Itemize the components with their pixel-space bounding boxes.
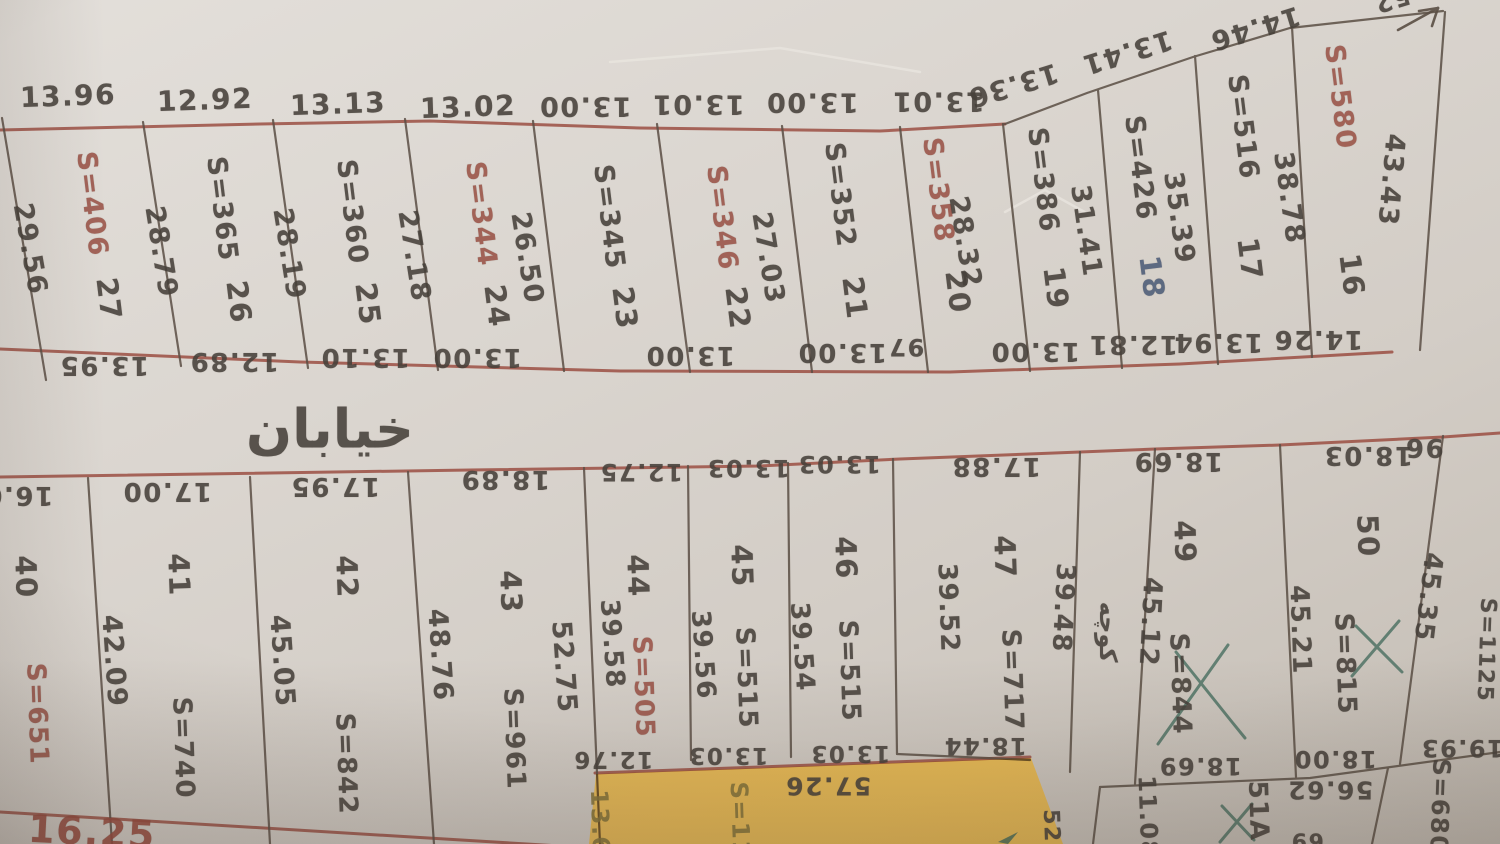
top-width-plot-27: 13.96 xyxy=(19,78,116,114)
bottom-width-plot-19: 13.00 xyxy=(990,336,1080,366)
bottom-width-plot-17: 13.94 xyxy=(1173,327,1263,357)
top-width-plot-19: 13.36 xyxy=(964,57,1062,114)
side-19-18: 31.41 xyxy=(1064,183,1108,279)
plot-25-area: S=360 xyxy=(330,158,374,267)
bottom-width-plot-25: 13.10 xyxy=(320,342,410,372)
plot-27-area: S=406 xyxy=(70,150,114,259)
bottom-width-plot-right: 19.93 xyxy=(1420,734,1500,762)
plot-25-number: 25 xyxy=(348,280,387,327)
bottom-width-plot-44: 12.76 xyxy=(573,746,653,772)
top-width-plot-49: 18.69 xyxy=(1133,446,1223,476)
top-width-right-fragment: 96 xyxy=(1404,432,1443,462)
plot-17-area: S=516 xyxy=(1221,73,1265,182)
plot-23-number: 23 xyxy=(605,284,644,331)
top-width-plot-26: 12.92 xyxy=(156,82,253,118)
plot-18-area: S=426 xyxy=(1118,114,1162,223)
plot-21-area: S=352 xyxy=(818,141,862,250)
bottom-street-length: 16.25 xyxy=(27,807,157,844)
plot-46-number: 46 xyxy=(828,536,863,581)
plot-45-number: 45 xyxy=(724,544,759,589)
bottom-width-plot-24: 13.00 xyxy=(432,342,522,372)
plot-44-number: 44 xyxy=(620,554,655,599)
top-width-plot-21: 13.00 xyxy=(766,87,859,118)
plot-16-area: S=580 xyxy=(1318,43,1362,152)
top-width-plot-45: 13.03 xyxy=(706,454,789,482)
bottom-width-plot-45: 13.03 xyxy=(688,742,768,768)
top-width-plot-41: 17.00 xyxy=(122,476,212,506)
highlight-plot-left-side-fragment: 13.6 xyxy=(585,789,615,844)
bottom-width-plot-26: 12.89 xyxy=(189,346,279,376)
bottom-width-plot-21: 13.00 xyxy=(797,337,887,367)
plot-42-number: 42 xyxy=(329,555,364,600)
top-width-plot-46: 13.03 xyxy=(797,450,880,478)
plot-50-area: S=815 xyxy=(1328,612,1362,715)
plot-49-area: S=844 xyxy=(1163,632,1197,735)
bottom-width-plot-23: 13.00 xyxy=(645,340,735,370)
side-right-of-16: 43.43 xyxy=(1372,132,1411,227)
plot-46-area: S=515 xyxy=(832,619,866,722)
top-width-plot-43: 18.89 xyxy=(460,464,550,494)
bottom-width-plot-27: 13.95 xyxy=(59,350,149,380)
plot-17-number: 17 xyxy=(1230,235,1269,282)
plot-23-area: S=345 xyxy=(587,163,631,272)
side-27-26: 28.79 xyxy=(138,204,183,301)
side-18-17: 35.39 xyxy=(1157,170,1201,266)
side-45-46: 39.54 xyxy=(784,601,820,693)
plot-19-area: S=386 xyxy=(1021,126,1065,235)
bottom-width-plot-49: 18.69 xyxy=(1158,752,1241,780)
plot-43-number: 43 xyxy=(493,570,528,615)
bottom-width-plot-18: 12.81 xyxy=(1088,329,1178,359)
plot-51A-number: 51A xyxy=(1242,780,1274,842)
plot-47-number: 47 xyxy=(987,535,1022,580)
side-47-alley: 39.48 xyxy=(1046,562,1081,653)
plot-16-number: 16 xyxy=(1332,251,1371,298)
plot-right-area: S=1125 xyxy=(1472,597,1500,702)
side-26-25: 28.19 xyxy=(266,206,311,303)
length-51A-top: 56.62 xyxy=(1287,776,1374,805)
top-width-plot-23: 13.00 xyxy=(539,91,632,122)
side-40-41: 42.09 xyxy=(95,614,132,709)
top-width-plot-18: 13.41 xyxy=(1078,24,1176,81)
plot-26-number: 26 xyxy=(219,278,258,325)
top-width-plot-47: 17.88 xyxy=(951,451,1041,481)
alley-name-label: کوچه xyxy=(1094,602,1122,663)
plot-22-number: 22 xyxy=(718,284,757,331)
top-width-fragment: 52 xyxy=(1370,0,1413,19)
bottom-fragment-69: 69 xyxy=(1290,828,1324,844)
top-width-plot-44: 12.75 xyxy=(599,458,682,486)
highlight-plot-right-fragment: 52 xyxy=(1038,809,1064,843)
bottom-width-plot-50: 18.00 xyxy=(1293,745,1376,773)
top-width-plot-25: 13.13 xyxy=(289,86,386,122)
side-43-44-right: 39.58 xyxy=(594,598,630,690)
plot-40-area: S=651 xyxy=(20,662,54,765)
top-width-plot-22: 13.01 xyxy=(652,89,745,120)
side-41-42: 45.05 xyxy=(263,614,300,709)
bottom-width-plot-16: 14.26 xyxy=(1273,324,1363,354)
length-highlight-top: 57.26 xyxy=(785,772,872,801)
plot-50-number: 50 xyxy=(1350,514,1385,559)
bottom-width-plot-47: 18.44 xyxy=(943,732,1026,760)
side-17-16: 38.78 xyxy=(1267,150,1311,246)
plot-47-area: S=717 xyxy=(995,628,1029,731)
side-50-right: 45.35 xyxy=(1408,551,1449,644)
side-51A-left: 11.08 xyxy=(1133,775,1164,844)
side-49-50: 45.21 xyxy=(1283,585,1316,676)
plot-19-number: 19 xyxy=(1036,264,1075,311)
side-alley-49: 45.12 xyxy=(1133,576,1168,667)
plot-26-area: S=365 xyxy=(200,155,244,264)
bottom-width-fragment: 97 xyxy=(888,333,924,361)
plan-labels-layer: 13.9612.9213.1313.0213.0013.0113.0013.01… xyxy=(0,0,1500,844)
plot-22-area: S=346 xyxy=(700,164,744,273)
plot-24-number: 24 xyxy=(477,282,516,329)
highlight-plot-area-fragment: S=11 xyxy=(725,781,756,844)
plot-40-number: 40 xyxy=(8,555,43,600)
top-width-plot-40: 16.0 xyxy=(0,480,53,510)
top-width-plot-17: 14.46 xyxy=(1206,0,1304,56)
plot-41-area: S=740 xyxy=(166,696,200,799)
plot-49-number: 49 xyxy=(1167,520,1202,565)
bottom-width-plot-46: 13.03 xyxy=(810,740,890,766)
street-name-label: خیابان xyxy=(246,398,414,461)
top-width-plot-42: 17.95 xyxy=(290,471,380,501)
plot-27-number: 27 xyxy=(89,275,128,322)
side-43-44-left: 52.75 xyxy=(545,620,582,715)
plot-680-area-fragment: S=680 xyxy=(1424,758,1455,844)
plot-45-area: S=515 xyxy=(729,626,763,729)
plot-41-number: 41 xyxy=(161,553,196,598)
top-width-plot-50: 18.03 xyxy=(1323,440,1413,470)
plot-21-number: 21 xyxy=(835,274,874,321)
side-left-of-27: 29.56 xyxy=(7,201,54,298)
plot-44-area: S=505 xyxy=(626,635,660,738)
side-25-24: 27.18 xyxy=(391,208,436,305)
side-46-47: 39.52 xyxy=(931,563,964,654)
plot-24-area: S=344 xyxy=(459,160,503,269)
side-44-45: 39.56 xyxy=(685,609,721,701)
plot-18-number: 18 xyxy=(1132,253,1171,300)
plot-42-area: S=842 xyxy=(329,712,363,815)
side-42-43: 48.76 xyxy=(421,608,458,703)
top-width-plot-24: 13.02 xyxy=(419,89,516,125)
plot-43-area: S=961 xyxy=(497,687,531,790)
plan-photo: 13.9612.9213.1313.0213.0013.0113.0013.01… xyxy=(0,0,1500,844)
